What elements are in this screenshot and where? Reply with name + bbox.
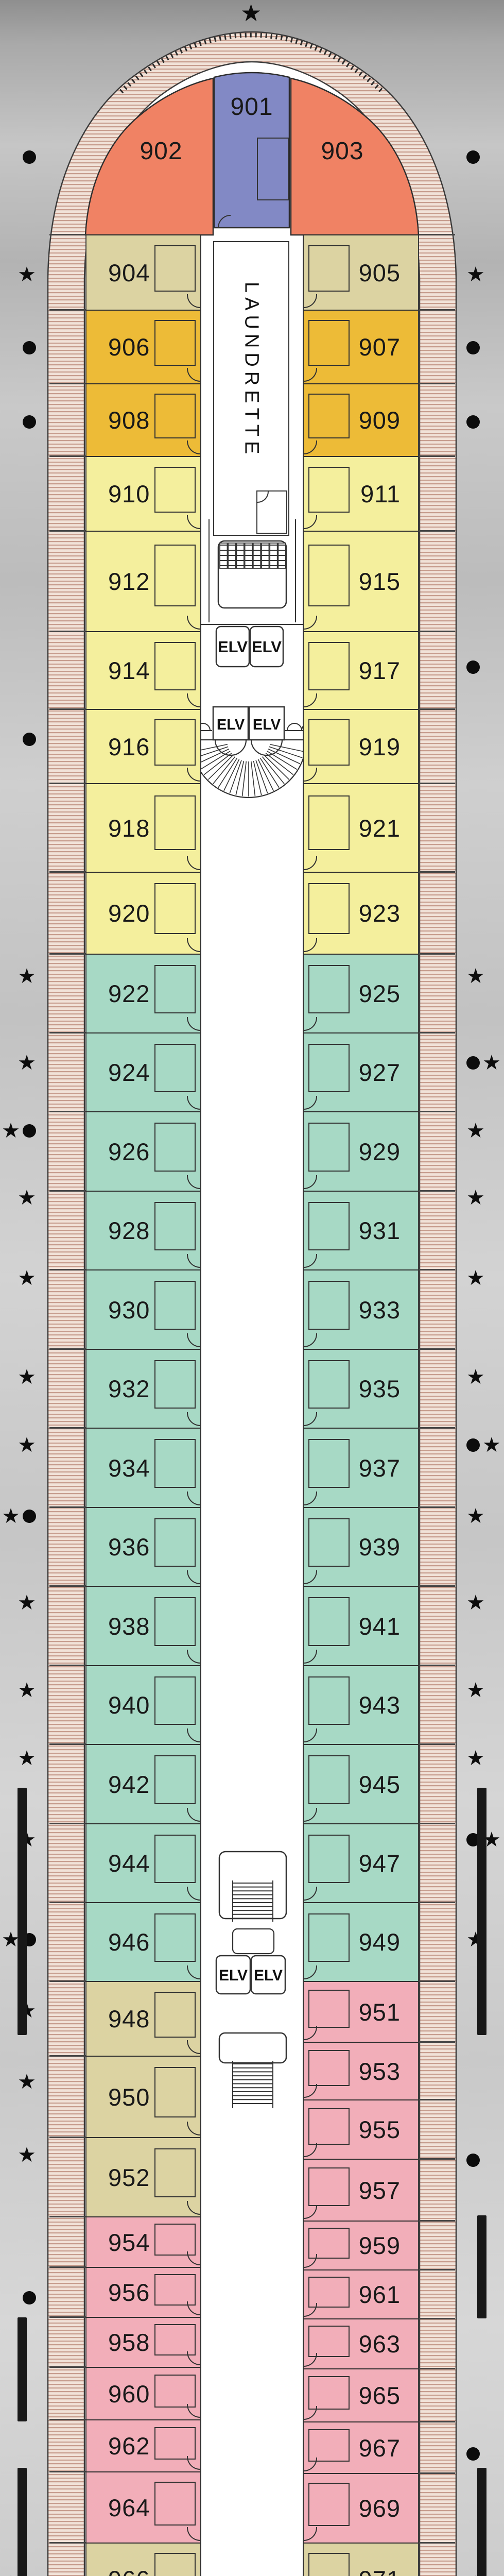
star-icon: ★ <box>482 1435 501 1455</box>
hull-marker-row: ★ <box>0 1433 39 1457</box>
dot-icon <box>23 733 36 746</box>
balcony-divider-line <box>419 2269 455 2270</box>
cabin-number-label: 944 <box>108 1849 150 1877</box>
cabin-number-label: 959 <box>359 2231 401 2260</box>
cabin-955: 955 <box>303 2099 419 2159</box>
elv-label: ELV <box>252 638 282 656</box>
cabin-941: 941 <box>303 1586 419 1665</box>
dot-icon <box>466 2447 480 2461</box>
elv-label: ELV <box>254 1967 283 1984</box>
hull-marker-row <box>463 410 504 434</box>
cabin-number-label: 948 <box>108 2005 150 2033</box>
hull-marker-row <box>0 727 39 751</box>
cabin-number-label: 965 <box>359 2381 401 2410</box>
cabin-919: 919 <box>303 709 419 783</box>
cabin-908: 908 <box>85 383 201 456</box>
balcony-divider-line <box>49 1980 85 1982</box>
cabin-948: 948 <box>85 1981 201 2056</box>
cabin-946: 946 <box>85 1902 201 1981</box>
cabin-943: 943 <box>303 1665 419 1744</box>
cabin-933: 933 <box>303 1269 419 1349</box>
star-icon: ★ <box>18 264 36 285</box>
hull-marker-row <box>463 145 504 169</box>
cabin-number-label: 945 <box>359 1770 401 1799</box>
dot-icon <box>23 1510 36 1523</box>
balcony-divider-line <box>419 530 455 532</box>
aft-stairs-upper <box>219 1852 286 1919</box>
cabin-923: 923 <box>303 872 419 954</box>
balcony-divider-line <box>49 2266 85 2268</box>
balcony-divider-line <box>419 783 455 784</box>
cabin-942: 942 <box>85 1744 201 1823</box>
lifeboat-bar <box>477 2468 486 2576</box>
cabin-number-label: 909 <box>359 406 401 434</box>
laundrette-wc-box <box>256 490 287 534</box>
cabin-934: 934 <box>85 1428 201 1507</box>
cabin-971: 971 <box>303 2543 419 2576</box>
hull-marker-row: ★ <box>0 263 39 286</box>
cabin-number-label: 934 <box>108 1454 150 1482</box>
cabin-911: 911 <box>303 456 419 531</box>
cabin-number-label: 904 <box>108 259 150 287</box>
deck-plan-canvas: ELV ELV ELV ELV ELV ELV LA <box>0 0 504 2576</box>
balcony-divider-line <box>419 309 455 311</box>
cabin-number-label: 953 <box>359 2057 401 2086</box>
star-icon: ★ <box>18 966 36 987</box>
balcony-divider-line <box>419 2099 455 2100</box>
balcony-divider-line <box>49 2366 85 2368</box>
hull-marker-row <box>463 336 504 360</box>
star-icon: ★ <box>18 1188 36 1208</box>
cabin-number-label: 938 <box>108 1612 150 1640</box>
balcony-divider-line <box>49 871 85 873</box>
cabin-number-label: 966 <box>108 2565 150 2576</box>
cabin-number-label: 942 <box>108 1770 150 1799</box>
elv-label: ELV <box>253 717 281 733</box>
cabin-909: 909 <box>303 383 419 456</box>
balcony-divider-line <box>419 1665 455 1666</box>
cabin-number-label: 920 <box>108 899 150 927</box>
hull-marker-row: ★ <box>463 1433 504 1457</box>
cabin-965: 965 <box>303 2368 419 2421</box>
cabin-number-label: 919 <box>359 733 401 761</box>
balcony-divider-line <box>419 234 455 235</box>
cabin-918: 918 <box>85 783 201 872</box>
balcony-divider-line <box>49 2471 85 2472</box>
star-icon: ★ <box>482 1053 501 1073</box>
balcony-divider-line <box>49 631 85 632</box>
balcony-divider-line <box>49 455 85 457</box>
dot-icon <box>23 415 36 429</box>
balcony-divider-line <box>49 1032 85 1033</box>
balcony-divider-line <box>419 953 455 955</box>
cabin-number-label: 947 <box>359 1849 401 1877</box>
hull-marker-row: ★ <box>463 1266 504 1290</box>
cabin-967: 967 <box>303 2421 419 2473</box>
cabin-927: 927 <box>303 1032 419 1111</box>
cabin-number-label: 954 <box>108 2228 150 2257</box>
hull-marker-row: ★ <box>0 964 39 988</box>
cabin-number-label: 912 <box>108 567 150 596</box>
cabin-915: 915 <box>303 531 419 631</box>
hull-marker-row: ★ <box>463 964 504 988</box>
balcony-divider-line <box>49 708 85 710</box>
cabin-924: 924 <box>85 1032 201 1111</box>
cabin-number-label: 926 <box>108 1138 150 1166</box>
dot-icon <box>23 341 36 354</box>
cabin-969: 969 <box>303 2473 419 2543</box>
hull-marker-row: ★ <box>463 1119 504 1143</box>
balcony-divider-line <box>49 1427 85 1429</box>
hull-marker-row: ★ <box>0 1747 39 1770</box>
hull-marker-row <box>0 410 39 434</box>
lifeboat-bar <box>477 2215 486 2318</box>
cabin-950: 950 <box>85 2056 201 2137</box>
cabin-917: 917 <box>303 631 419 709</box>
balcony-divider-line <box>419 383 455 384</box>
cabin-number-label: 925 <box>359 979 401 1008</box>
cabin-929: 929 <box>303 1111 419 1191</box>
cabin-number-label: 955 <box>359 2115 401 2144</box>
hull-marker-row: ★ <box>0 1266 39 1290</box>
balcony-divider-line <box>49 1269 85 1270</box>
lifeboat-bar <box>477 1788 486 2035</box>
balcony-divider-line <box>419 1190 455 1192</box>
star-icon: ★ <box>466 1506 485 1527</box>
cabin-956: 956 <box>85 2267 201 2317</box>
cabin-912: 912 <box>85 531 201 631</box>
cabin-number-label: 931 <box>359 1216 401 1245</box>
balcony-divider-line <box>419 2368 455 2369</box>
balcony-divider-line <box>419 2472 455 2474</box>
cabin-928: 928 <box>85 1191 201 1269</box>
balcony-divider-line <box>49 1743 85 1745</box>
balcony-divider-line <box>49 383 85 384</box>
cabin-number-label: 916 <box>108 733 150 761</box>
star-icon: ★ <box>466 1268 485 1289</box>
cabin-910: 910 <box>85 456 201 531</box>
cabin-number-label: 915 <box>359 567 401 596</box>
cabin-907: 907 <box>303 310 419 383</box>
balcony-divider-line <box>419 871 455 873</box>
star-icon: ★ <box>18 1680 36 1701</box>
cabin-916: 916 <box>85 709 201 783</box>
elv-label: ELV <box>217 717 245 733</box>
cabin-number-label: 905 <box>359 259 401 287</box>
hull-marker-row: ★ <box>0 1365 39 1389</box>
cabin-935: 935 <box>303 1349 419 1428</box>
balcony-divider-line <box>49 1190 85 1192</box>
hull-marker-row: ★ <box>463 263 504 286</box>
balcony-divider-line <box>49 1823 85 1824</box>
balcony-divider-line <box>419 1506 455 1508</box>
hull-marker-row: ★ <box>463 1365 504 1389</box>
dot-icon <box>466 341 480 354</box>
lifeboat-bar <box>18 2468 27 2576</box>
cabin-number-label: 907 <box>359 333 401 361</box>
star-icon: ★ <box>466 1748 485 1769</box>
cabin-number-label: 960 <box>108 2380 150 2408</box>
cabin-number-label: 911 <box>360 480 401 508</box>
balcony-divider-line <box>419 2318 455 2319</box>
bow-star-icon: ★ <box>240 1 262 25</box>
cabin-number-label: 958 <box>108 2328 150 2357</box>
cabin-number-label: 961 <box>359 2280 401 2309</box>
cabin-number-label: 963 <box>359 2330 401 2358</box>
cabin-number-label: 951 <box>359 1998 401 2026</box>
cabin-number-label: 921 <box>359 814 401 842</box>
balcony-divider-line <box>419 1743 455 1745</box>
hull-marker-row <box>0 2286 39 2310</box>
dot-icon <box>466 2154 480 2167</box>
cabin-953: 953 <box>303 2042 419 2099</box>
cabin-number-label: 946 <box>108 1928 150 1956</box>
cabin-958: 958 <box>85 2317 201 2367</box>
cabin-964: 964 <box>85 2471 201 2543</box>
balcony-divider-line <box>49 783 85 784</box>
star-icon: ★ <box>2 1506 20 1527</box>
cabin-number-label: 930 <box>108 1296 150 1324</box>
cabin-number-label: 940 <box>108 1691 150 1719</box>
dot-icon <box>466 150 480 164</box>
balcony-divider-line <box>49 2419 85 2420</box>
star-icon: ★ <box>466 966 485 987</box>
balcony-divider-line <box>419 1585 455 1587</box>
cabin-number-label: 936 <box>108 1533 150 1561</box>
balcony-divider-line <box>419 1980 455 1982</box>
balcony-divider-line <box>419 1269 455 1270</box>
cabin-954: 954 <box>85 2216 201 2267</box>
cabin-961: 961 <box>303 2269 419 2318</box>
cabin-920: 920 <box>85 872 201 954</box>
balcony-divider-line <box>419 2041 455 2043</box>
balcony-divider-line <box>419 1348 455 1350</box>
balcony-divider-line <box>49 1348 85 1350</box>
cabin-966: 966 <box>85 2543 201 2576</box>
cabin-number-label: 971 <box>359 2565 401 2576</box>
star-icon: ★ <box>18 1748 36 1769</box>
balcony-divider-line <box>419 1032 455 1033</box>
hull-marker-row: ★ <box>463 1051 504 1075</box>
cabin-932: 932 <box>85 1349 201 1428</box>
star-icon: ★ <box>466 1680 485 1701</box>
cabin-number-label: 923 <box>359 899 401 927</box>
hull-marker-row <box>0 336 39 360</box>
cabin-number-label: 924 <box>108 1058 150 1087</box>
cabin-number-label: 969 <box>359 2494 401 2522</box>
star-icon: ★ <box>18 1435 36 1455</box>
cabin-number-label: 927 <box>359 1058 401 1087</box>
cabin-939: 939 <box>303 1507 419 1586</box>
balcony-divider-line <box>49 1902 85 1903</box>
balcony-divider-line <box>419 2421 455 2422</box>
dot-icon <box>23 2291 36 2304</box>
cabin-901-label: 901 <box>208 91 296 123</box>
balcony-divider-line <box>49 530 85 532</box>
balcony-divider-line <box>49 2055 85 2057</box>
cabin-number-label: 956 <box>108 2278 150 2307</box>
star-icon: ★ <box>466 264 485 285</box>
cabin-number-label: 906 <box>108 333 150 361</box>
hull-marker-row: ★ <box>0 1119 39 1143</box>
balcony-divider-line <box>419 2220 455 2222</box>
cabin-951: 951 <box>303 1981 419 2042</box>
star-icon: ★ <box>18 1053 36 1073</box>
balcony-divider-line <box>419 631 455 632</box>
cabin-number-label: 950 <box>108 2083 150 2111</box>
star-icon: ★ <box>466 1121 485 1141</box>
cabin-938: 938 <box>85 1586 201 1665</box>
balcony-divider-line <box>49 2316 85 2318</box>
balcony-divider-line <box>49 234 85 235</box>
balcony-divider-line <box>419 455 455 457</box>
elv-label: ELV <box>218 638 248 656</box>
balcony-divider-line <box>49 2216 85 2217</box>
cabin-960: 960 <box>85 2367 201 2419</box>
cabin-949: 949 <box>303 1902 419 1981</box>
elevator-bank-forward: ELV ELV <box>216 626 283 667</box>
cabin-number-label: 932 <box>108 1375 150 1403</box>
cabin-number-label: 949 <box>359 1928 401 1956</box>
balcony-divider-line <box>49 1585 85 1587</box>
cabin-936: 936 <box>85 1507 201 1586</box>
cabin-930: 930 <box>85 1269 201 1349</box>
hull-marker-row: ★ <box>463 1591 504 1615</box>
hull-marker-row: ★ <box>0 2070 39 2094</box>
cabin-number-label: 962 <box>108 2432 150 2460</box>
cabin-947: 947 <box>303 1823 419 1902</box>
elevator-bank-aft: ELV ELV <box>216 1956 285 1994</box>
dot-icon <box>466 660 480 674</box>
lifeboat-bar <box>18 1788 27 2035</box>
hull-marker-row: ★ <box>463 1504 504 1528</box>
cabin-number-label: 952 <box>108 2163 150 2192</box>
dot-icon <box>23 150 36 164</box>
cabin-number-label: 939 <box>359 1533 401 1561</box>
dot-icon <box>466 1056 480 1070</box>
cabin-963: 963 <box>303 2318 419 2368</box>
cabin-number-label: 935 <box>359 1375 401 1403</box>
cabin-952: 952 <box>85 2137 201 2216</box>
hull-marker-row: ★ <box>463 1679 504 1702</box>
cabin-944: 944 <box>85 1823 201 1902</box>
balcony-divider-line <box>49 1506 85 1508</box>
cabin-number-label: 914 <box>108 656 150 685</box>
cabin-925: 925 <box>303 954 419 1032</box>
star-icon: ★ <box>466 1188 485 1208</box>
cabin-number-label: 929 <box>359 1138 401 1166</box>
cabin-914: 914 <box>85 631 201 709</box>
cabin-number-label: 937 <box>359 1454 401 1482</box>
balcony-divider-line <box>49 2137 85 2138</box>
balcony-divider-line <box>419 1427 455 1429</box>
cabin-906: 906 <box>85 310 201 383</box>
star-icon: ★ <box>18 2145 36 2165</box>
hull-marker-row <box>0 145 39 169</box>
balcony-divider-line <box>49 1665 85 1666</box>
cabin-959: 959 <box>303 2221 419 2269</box>
hull-marker-row: ★ <box>463 1747 504 1770</box>
cabin-904: 904 <box>85 234 201 310</box>
cabin-926: 926 <box>85 1111 201 1191</box>
hull-marker-row: ★ <box>0 2143 39 2167</box>
hull-marker-row: ★ <box>0 1591 39 1615</box>
hull-marker-row: ★ <box>0 1679 39 1702</box>
dot-icon <box>466 415 480 429</box>
dot-icon <box>466 1438 480 1452</box>
hull-marker-row: ★ <box>463 1186 504 1210</box>
cabin-902-label: 902 <box>117 135 205 167</box>
dot-icon <box>23 1124 36 1138</box>
cabin-number-label: 967 <box>359 2434 401 2462</box>
balcony-divider-line <box>419 2542 455 2544</box>
cabin-940: 940 <box>85 1665 201 1744</box>
cabin-number-label: 928 <box>108 1216 150 1245</box>
stair-tread-grid <box>220 543 286 568</box>
star-icon: ★ <box>18 1367 36 1387</box>
aft-stairs-lower <box>219 2033 286 2063</box>
cabin-962: 962 <box>85 2419 201 2471</box>
balcony-divider-line <box>49 1111 85 1112</box>
balcony-divider-line <box>49 953 85 955</box>
cabin-number-label: 941 <box>359 1612 401 1640</box>
laundrette-label: LAUNDRETTE <box>240 282 263 459</box>
star-icon: ★ <box>18 1268 36 1289</box>
balcony-divider-line <box>419 1902 455 1903</box>
hull-marker-row: ★ <box>0 1051 39 1075</box>
hull-marker-row <box>463 655 504 679</box>
cabin-number-label: 933 <box>359 1296 401 1324</box>
hull-marker-row <box>463 2148 504 2172</box>
cabin-number-label: 922 <box>108 979 150 1008</box>
star-icon: ★ <box>466 1367 485 1387</box>
cabin-922: 922 <box>85 954 201 1032</box>
elv-label: ELV <box>219 1967 248 1984</box>
cabin-number-label: 908 <box>108 406 150 434</box>
balcony-divider-line <box>419 1111 455 1112</box>
balcony-divider-line <box>419 1823 455 1824</box>
star-icon: ★ <box>2 1121 20 1141</box>
star-icon: ★ <box>466 1592 485 1613</box>
balcony-divider-line <box>49 309 85 311</box>
cabin-945: 945 <box>303 1744 419 1823</box>
cabin-937: 937 <box>303 1428 419 1507</box>
lifeboat-bar <box>18 2317 27 2421</box>
cabin-number-label: 964 <box>108 2494 150 2522</box>
cabin-number-label: 957 <box>359 2176 401 2205</box>
cabin-957: 957 <box>303 2159 419 2221</box>
cabin-921: 921 <box>303 783 419 872</box>
cabin-931: 931 <box>303 1191 419 1269</box>
balcony-divider-line <box>419 708 455 710</box>
star-icon: ★ <box>18 2072 36 2092</box>
cabin-number-label: 917 <box>359 656 401 685</box>
hull-marker-row <box>463 2442 504 2466</box>
cabin-number-label: 943 <box>359 1691 401 1719</box>
hull-marker-row: ★ <box>0 1186 39 1210</box>
star-icon: ★ <box>18 1592 36 1613</box>
cabin-903-label: 903 <box>299 135 386 167</box>
balcony-divider-line <box>49 2542 85 2544</box>
balcony-divider-line <box>419 2158 455 2160</box>
aft-landing-box <box>233 1929 274 1954</box>
cabin-number-label: 910 <box>108 480 150 508</box>
hull-marker-row: ★ <box>0 1504 39 1528</box>
cabin-number-label: 918 <box>108 814 150 842</box>
cabin-905: 905 <box>303 234 419 310</box>
